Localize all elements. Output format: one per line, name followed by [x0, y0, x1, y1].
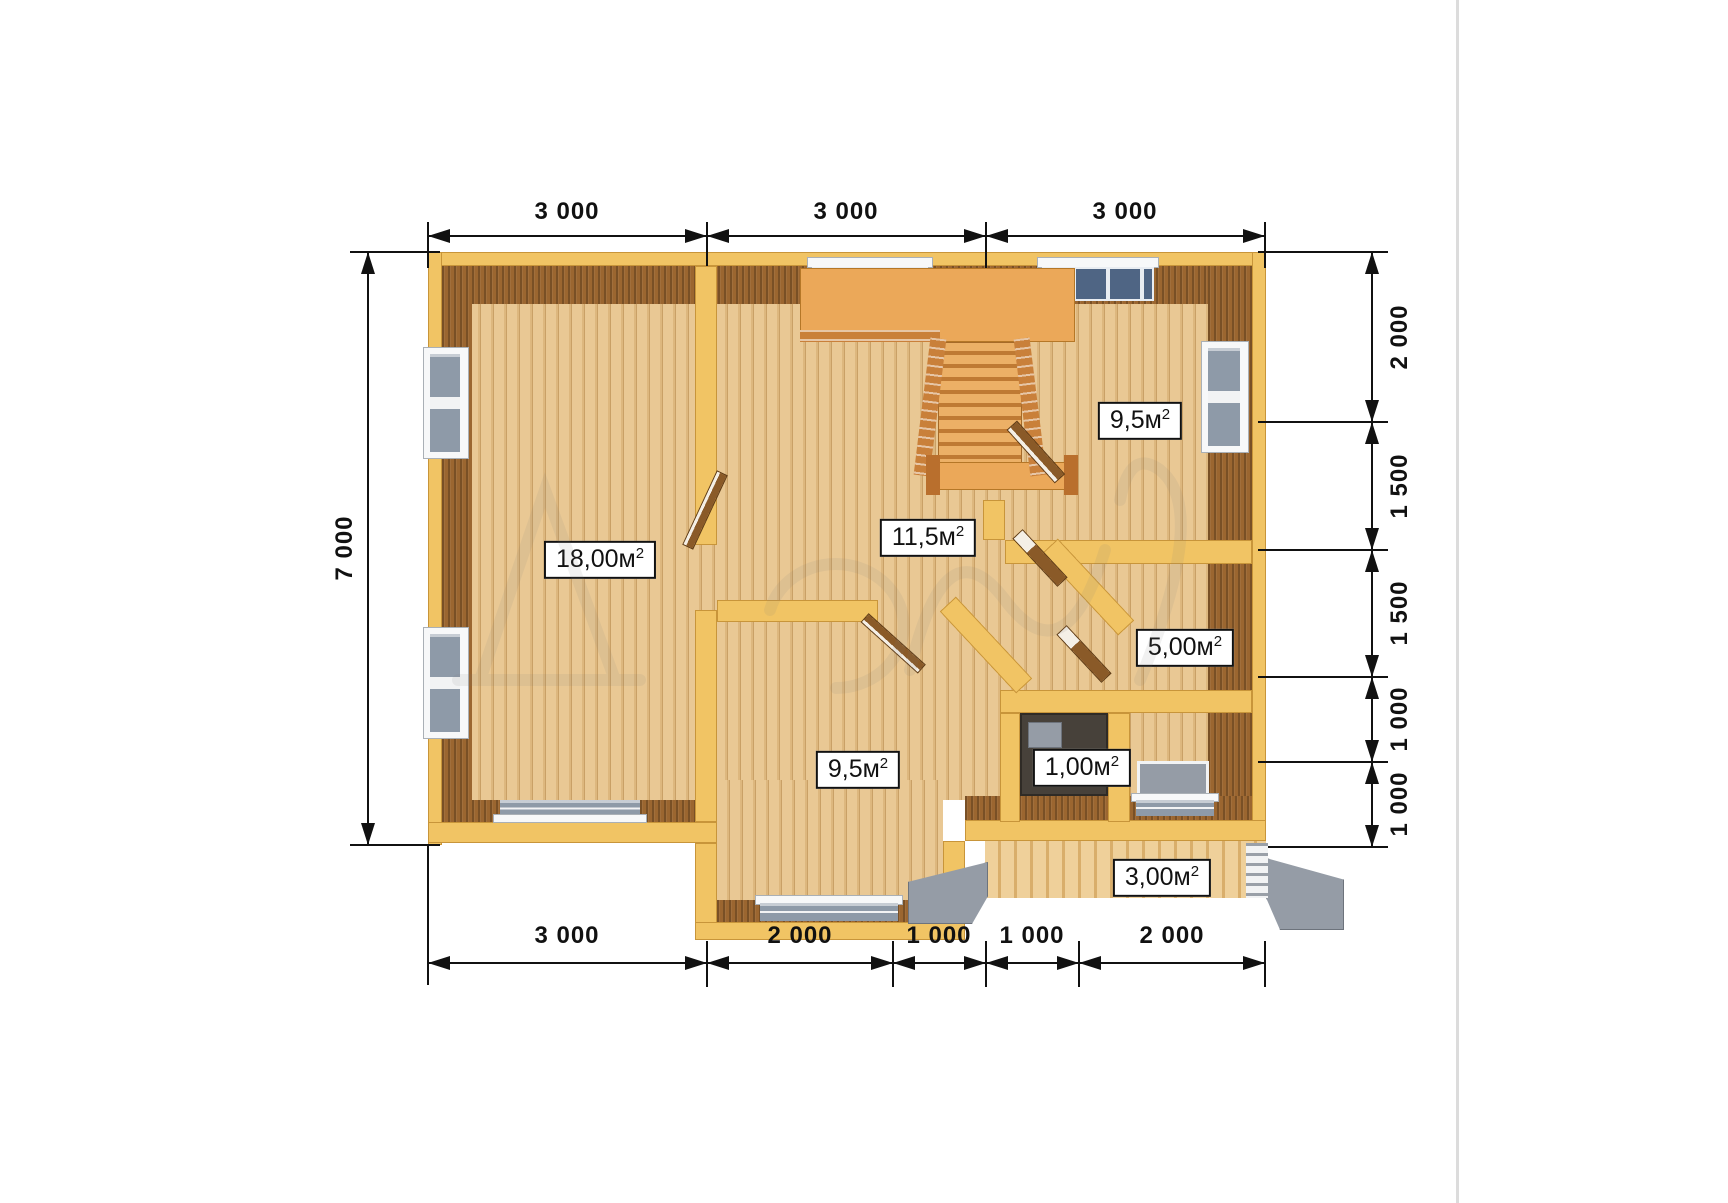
dim-arrow: [1365, 528, 1379, 550]
dim-label-right-4: 1 000: [1386, 686, 1414, 751]
room-area-value: 9,5м: [1110, 406, 1162, 434]
dim-label-right-2: 1 500: [1386, 453, 1414, 518]
dim-label-top-1: 3 000: [534, 198, 599, 226]
room-area-value: 9,5м: [828, 755, 880, 783]
window-bay: [760, 903, 898, 921]
dim-arrow: [1057, 956, 1079, 970]
dim-arrow: [1365, 655, 1379, 677]
shower-tray: [1140, 764, 1206, 794]
room-area-exp: 2: [880, 755, 888, 772]
window-shower: [1136, 800, 1214, 816]
room-label-room5: 5,00м2: [1136, 629, 1234, 667]
dim-arrow: [1365, 400, 1379, 422]
room-label-bedroom-right: 9,5м2: [1098, 402, 1182, 440]
wall-wc-left: [1000, 713, 1020, 822]
dim-arrow: [1243, 229, 1265, 243]
dim-arrow: [1365, 252, 1379, 274]
room-area-exp: 2: [636, 545, 644, 562]
room-area-exp: 2: [1162, 406, 1170, 423]
dim-arrow: [361, 252, 375, 274]
window-top-right-sill: [1038, 258, 1158, 267]
dim-label-right-1: 2 000: [1386, 304, 1414, 369]
dim-arrow: [428, 229, 450, 243]
dim-label-bottom-3: 1 000: [906, 922, 971, 950]
outer-wall-bottom-left: [428, 822, 717, 843]
dim-arrow: [1365, 825, 1379, 847]
window-bottom-left-sill: [494, 815, 646, 822]
wall-living-lower: [695, 610, 717, 822]
room-area-exp: 2: [1111, 753, 1119, 770]
floor-main: [442, 266, 1252, 800]
room-area-exp: 2: [956, 523, 964, 540]
dim-arrow: [1365, 677, 1379, 699]
room-label-hall: 11,5м2: [880, 519, 976, 557]
dim-label-bottom-5: 2 000: [1139, 922, 1204, 950]
stair-flight: [938, 342, 1022, 466]
dim-arrow: [1079, 956, 1101, 970]
stair-balustrade: [800, 330, 940, 342]
dim-arrow: [1365, 762, 1379, 784]
dim-label-left: 7 000: [331, 515, 359, 580]
wc-fixture: [1028, 722, 1062, 748]
page-edge-rule: [1456, 0, 1459, 1203]
dim-arrow: [1365, 550, 1379, 572]
room-label-wc: 1,00м2: [1033, 749, 1131, 787]
room-area-value: 1,00м: [1045, 753, 1111, 781]
window-left-upper-pane: [430, 354, 460, 452]
dim-label-bottom-2: 2 000: [767, 922, 832, 950]
outer-wall-bottom-right: [965, 820, 1266, 841]
dim-label-right-3: 1 500: [1386, 580, 1414, 645]
dim-arrow: [428, 956, 450, 970]
dim-arrow: [361, 823, 375, 845]
room-area-exp: 2: [1214, 633, 1222, 650]
porch-railing: [1246, 843, 1268, 898]
wall-room5-bottom: [1000, 690, 1252, 713]
dim-arrow: [1365, 740, 1379, 762]
dim-line-left: [367, 252, 369, 845]
dim-arrow: [1243, 956, 1265, 970]
room-area-value: 3,00м: [1125, 863, 1191, 891]
dim-label-top-3: 3 000: [1092, 198, 1157, 226]
dim-arrow: [871, 956, 893, 970]
outer-wall-right: [1252, 252, 1266, 841]
room-area-value: 18,00м: [556, 545, 636, 573]
room-area-value: 5,00м: [1148, 633, 1214, 661]
dim-arrow: [685, 229, 707, 243]
dim-arrow: [707, 229, 729, 243]
dim-arrow: [964, 956, 986, 970]
dim-arrow: [1365, 422, 1379, 444]
stair-newel-right: [1064, 455, 1078, 495]
window-left-lower-pane: [430, 634, 460, 732]
window-right-pane: [1208, 348, 1240, 446]
floor-plan: 18,00м2 11,5м2 9,5м2 9,5м2 5,00м2 1,00м2…: [0, 0, 1728, 1203]
outer-wall-left: [428, 252, 442, 845]
dim-arrow: [964, 229, 986, 243]
wall-hall-bottom: [717, 600, 878, 622]
dim-label-bottom-4: 1 000: [999, 922, 1064, 950]
dim-arrow: [893, 956, 915, 970]
room-label-living: 18,00м2: [544, 541, 656, 579]
dim-arrow: [986, 956, 1008, 970]
dim-arrow: [685, 956, 707, 970]
room-area-value: 11,5м: [892, 523, 956, 551]
dim-arrow: [707, 956, 729, 970]
dim-label-bottom-1: 3 000: [534, 922, 599, 950]
stair-newel-left: [926, 455, 940, 495]
room-label-bedroom-bottom: 9,5м2: [816, 751, 900, 789]
dim-label-right-5: 1 000: [1386, 771, 1414, 836]
dim-arrow: [986, 229, 1008, 243]
dim-line-bottom: [428, 962, 1265, 964]
room-area-exp: 2: [1191, 863, 1199, 880]
window-top-stair-sill: [808, 258, 932, 267]
porch-steps-right: [1266, 858, 1344, 930]
wall-hall-right-lower: [983, 500, 1005, 540]
dim-label-top-2: 3 000: [813, 198, 878, 226]
dim-line-top: [428, 235, 1265, 237]
room-label-porch: 3,00м2: [1113, 859, 1211, 897]
